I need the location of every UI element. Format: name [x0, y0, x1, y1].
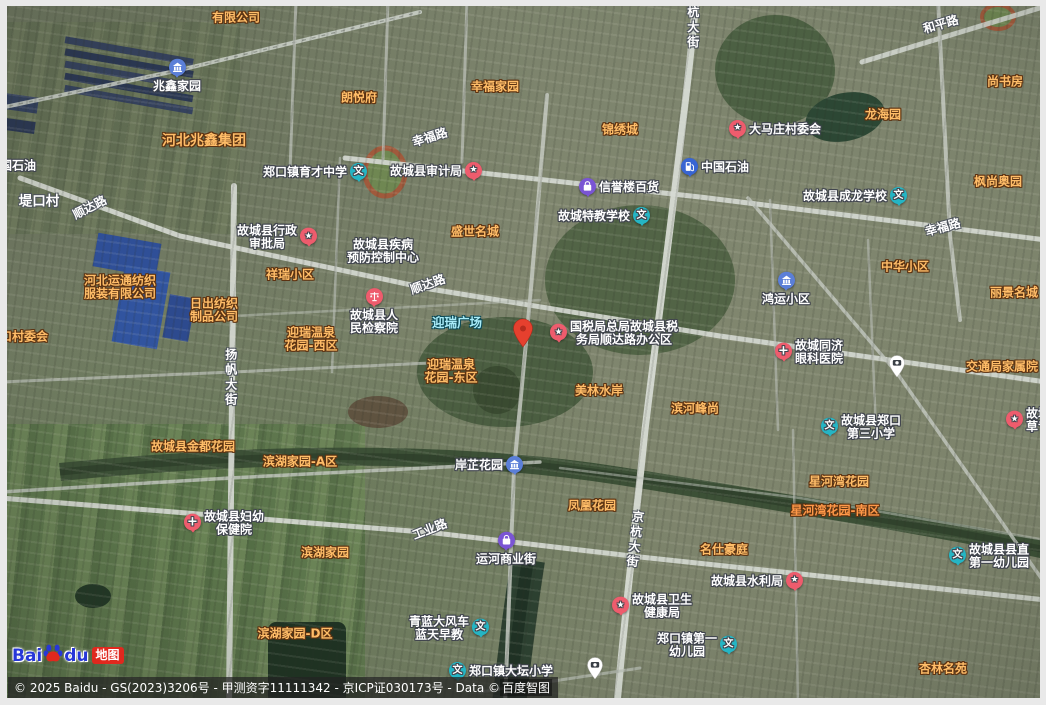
star-pin-icon[interactable]: ★: [300, 228, 317, 245]
school-pin-icon[interactable]: 文: [350, 163, 367, 180]
label-text: 盛世名城: [451, 225, 499, 238]
village-label: 堤口村: [19, 194, 60, 209]
estate-pin-icon[interactable]: [168, 59, 185, 76]
label-text: 中华小区: [881, 260, 929, 273]
baidu-logo-du: du: [64, 646, 88, 666]
map-world: 有限公司河北兆鑫集团朗悦府幸福家园锦绣城尚书房龙海园枫尚奥园中华小区丽景名城盛世…: [7, 6, 1040, 698]
label-text: 故城县疾病预防控制中心: [347, 239, 419, 266]
star-pin-icon[interactable]: ★: [550, 324, 567, 341]
label-text: 国石油: [7, 159, 36, 172]
label-text: 故城县金都花园: [151, 440, 235, 453]
map-labels-layer: 有限公司河北兆鑫集团朗悦府幸福家园锦绣城尚书房龙海园枫尚奥园中华小区丽景名城盛世…: [7, 6, 1040, 698]
label-text: 名仕豪庭: [700, 543, 748, 556]
label-text: 信誉楼百货: [599, 181, 659, 194]
poi-label[interactable]: 故城县成龙学校文: [803, 187, 907, 207]
baidu-paw-icon: [43, 643, 63, 668]
label-text: 幸福家园: [471, 80, 519, 93]
estate-pin-icon[interactable]: [777, 272, 794, 289]
area-label[interactable]: 有限公司: [212, 11, 260, 24]
area-label[interactable]: 中华小区: [881, 260, 929, 273]
road-label: 杭大街: [685, 6, 698, 51]
label-text: 故城同济眼科医院: [795, 340, 843, 367]
poi-label[interactable]: 郑口镇育才中学文: [263, 163, 367, 183]
poi-label[interactable]: 中国石油: [681, 158, 749, 178]
poi-label[interactable]: 兆鑫家园: [153, 59, 201, 93]
area-label[interactable]: 迎瑞温泉花园-西区: [285, 327, 338, 354]
area-label[interactable]: 星河湾花园: [809, 475, 869, 488]
area-label[interactable]: 滨河峰尚: [671, 402, 719, 415]
area-label[interactable]: 祥瑞小区: [266, 268, 314, 281]
shop-pin-icon[interactable]: [497, 532, 514, 549]
poi-label[interactable]: 信誉楼百货: [579, 178, 659, 198]
copyright-text: © 2025 Baidu - GS(2023)3206号 - 甲测资字11111…: [14, 679, 500, 696]
baidu-map-badge: 地图: [92, 647, 124, 665]
label-text: 日出纺织制品公司: [190, 298, 238, 325]
area-label[interactable]: 锦绣城: [602, 123, 638, 136]
label-text: 顺达路: [71, 194, 109, 222]
label-text: 有限公司: [212, 11, 260, 24]
poi-label[interactable]: 文故城县郑口第三小学: [821, 415, 901, 442]
poi-label[interactable]: 岸芷花园: [455, 456, 523, 476]
road-label: 扬帆大街: [223, 348, 236, 408]
label-text: 扬帆大街: [223, 348, 236, 408]
label-text: 杏林名苑: [919, 662, 967, 675]
area-label[interactable]: 滨湖家园: [301, 546, 349, 559]
label-text: 幸福路: [924, 217, 962, 239]
poi-label[interactable]: ★故城县卫生健康局: [612, 594, 692, 621]
label-text: 滨河峰尚: [671, 402, 719, 415]
label-text: 杭大街: [685, 6, 698, 51]
school-pin-icon[interactable]: 文: [720, 636, 737, 653]
cross-pin-icon[interactable]: +: [775, 343, 792, 360]
area-label[interactable]: 口村委会: [7, 330, 48, 343]
label-text: 故城特教学校: [558, 210, 630, 223]
label-text: 星河湾花园: [809, 475, 869, 488]
area-label[interactable]: 枫尚奥园: [974, 175, 1022, 188]
label-text: 故城县卫生健康局: [632, 594, 692, 621]
baidu-logo[interactable]: Bai du 地图: [12, 643, 124, 668]
poi-label[interactable]: 故城县审计局★: [390, 162, 482, 182]
area-label[interactable]: 凤凰花园: [568, 499, 616, 512]
copyright-brand: 百度智图: [500, 679, 552, 696]
poi-label[interactable]: 鸿运小区: [762, 272, 810, 306]
baidu-logo-bai: Bai: [12, 646, 42, 666]
star-pin-icon[interactable]: ★: [729, 120, 746, 137]
area-label[interactable]: 日出纺织制品公司: [190, 298, 238, 325]
school-pin-icon[interactable]: 文: [633, 207, 650, 224]
area-label[interactable]: 龙海园: [865, 108, 901, 121]
star-pin-icon[interactable]: ★: [612, 597, 629, 614]
label-text: 河北兆鑫集团: [162, 134, 246, 150]
traffic-camera-pin-icon[interactable]: [586, 656, 605, 684]
area-label[interactable]: 朗悦府: [341, 91, 377, 104]
label-text: 祥瑞小区: [266, 268, 314, 281]
area-label[interactable]: 交通局家属院: [966, 360, 1038, 373]
poi-label[interactable]: 青蓝大风车蓝天早教文: [409, 616, 489, 643]
label-text: 京杭大街: [624, 509, 645, 570]
label-text: 鸿运小区: [762, 293, 810, 306]
road-label: 幸福路: [924, 217, 962, 239]
label-text: 枫尚奥园: [974, 175, 1022, 188]
area-label[interactable]: 丽景名城: [990, 286, 1038, 299]
poi-label[interactable]: 文故城县县直第一幼儿园: [949, 544, 1029, 571]
cross-pin-icon[interactable]: +: [184, 514, 201, 531]
label-text: 中国石油: [701, 161, 749, 174]
label-text: 故城县水利局: [711, 575, 783, 588]
label-text: 口村委会: [7, 330, 48, 343]
fuel-pin-icon[interactable]: [681, 158, 698, 175]
poi-label[interactable]: 故城县行政审批局★: [237, 225, 317, 252]
poi-label[interactable]: ★国税局总局故城县税务局顺达路办公区: [550, 321, 678, 348]
label-text: 迎瑞广场: [432, 316, 482, 330]
road-label: 顺达路: [409, 273, 447, 297]
school-pin-icon[interactable]: 文: [821, 418, 838, 435]
label-text: 凤凰花园: [568, 499, 616, 512]
school-pin-icon[interactable]: 文: [472, 619, 489, 636]
area-label[interactable]: 迎瑞温泉花园-东区: [425, 359, 478, 386]
poi-label[interactable]: 故城县人民检察院: [350, 288, 398, 336]
area-label[interactable]: 星河湾花园-南区: [791, 504, 880, 517]
area-label[interactable]: 幸福家园: [471, 80, 519, 93]
area-label[interactable]: 美林水岸: [575, 384, 623, 397]
label-text: 青蓝大风车蓝天早教: [409, 616, 469, 643]
school-pin-icon[interactable]: 文: [890, 187, 907, 204]
label-text: 运河商业街: [476, 553, 536, 566]
road-label: 工业路: [411, 517, 449, 542]
poi-label[interactable]: 故城县水利局★: [711, 572, 803, 592]
poi-label[interactable]: 故城特教学校文: [558, 207, 650, 227]
label-text: 岸芷花园: [455, 459, 503, 472]
label-text: 郑口镇育才中学: [263, 166, 347, 179]
label-text: 滨湖家园: [301, 546, 349, 559]
label-text: 郑口镇第一幼儿园: [657, 633, 717, 660]
area-label[interactable]: 河北运通纺织服装有限公司: [84, 275, 156, 302]
label-text: 迎瑞温泉花园-东区: [425, 359, 478, 386]
label-text: 美林水岸: [575, 384, 623, 397]
label-text: 尚书房: [987, 75, 1023, 88]
star-pin-icon[interactable]: ★: [786, 572, 803, 589]
label-text: 迎瑞温泉花园-西区: [285, 327, 338, 354]
estate-pin-icon[interactable]: [506, 456, 523, 473]
label-text: 故城县县直第一幼儿园: [969, 544, 1029, 571]
school-pin-icon[interactable]: 文: [949, 547, 966, 564]
label-text: 朗悦府: [341, 91, 377, 104]
label-text: 河北运通纺织服装有限公司: [84, 275, 156, 302]
plaza-label: 迎瑞广场: [432, 316, 482, 330]
red-location-marker[interactable]: [512, 318, 534, 352]
label-text: 故城县郑口第三小学: [841, 415, 901, 442]
poi-label[interactable]: 运河商业街: [476, 532, 536, 566]
label-text: 兆鑫家园: [153, 80, 201, 93]
star-pin-icon[interactable]: ★: [465, 162, 482, 179]
poi-label[interactable]: ★故城草专: [1006, 408, 1040, 435]
area-label[interactable]: 盛世名城: [451, 225, 499, 238]
road-label: 京杭大街: [624, 509, 645, 570]
poi-label[interactable]: ★大马庄村委会: [729, 120, 821, 140]
area-label[interactable]: 河北兆鑫集团: [162, 134, 246, 150]
map-viewport[interactable]: 有限公司河北兆鑫集团朗悦府幸福家园锦绣城尚书房龙海园枫尚奥园中华小区丽景名城盛世…: [7, 6, 1040, 698]
label-text: 故城县妇幼保健院: [204, 511, 264, 538]
label-text: 国税局总局故城县税务局顺达路办公区: [570, 321, 678, 348]
poi-label[interactable]: 故城县疾病预防控制中心: [347, 239, 419, 266]
poi-label[interactable]: +故城县妇幼保健院: [184, 511, 264, 538]
label-text: 工业路: [411, 517, 449, 542]
label-text: 星河湾花园-南区: [791, 504, 880, 517]
label-text: 故城县审计局: [390, 165, 462, 178]
road-label: 幸福路: [411, 126, 449, 149]
poi-label[interactable]: 郑口镇第一幼儿园文: [657, 633, 737, 660]
label-text: 滨湖家园-A区: [263, 455, 337, 468]
label-text: 堤口村: [19, 194, 60, 209]
label-text: 滨湖家园-D区: [258, 627, 333, 640]
area-label[interactable]: 滨湖家园-D区: [258, 627, 333, 640]
label-text: 龙海园: [865, 108, 901, 121]
label-text: 幸福路: [411, 126, 449, 149]
poi-label[interactable]: +故城同济眼科医院: [775, 340, 843, 367]
label-text: 故城县行政审批局: [237, 225, 297, 252]
label-text: 顺达路: [409, 273, 447, 297]
label-text: 丽景名城: [990, 286, 1038, 299]
label-text: 大马庄村委会: [749, 123, 821, 136]
area-label[interactable]: 尚书房: [987, 75, 1023, 88]
road-label: 顺达路: [71, 194, 109, 222]
label-text: 锦绣城: [602, 123, 638, 136]
poi-label[interactable]: 国石油: [7, 159, 36, 172]
area-label[interactable]: 故城县金都花园: [151, 440, 235, 453]
area-label[interactable]: 名仕豪庭: [700, 543, 748, 556]
label-text: 故城县成龙学校: [803, 190, 887, 203]
road-label: 和平路: [922, 14, 960, 37]
traffic-camera-pin-icon[interactable]: [888, 354, 907, 382]
star-pin-icon[interactable]: ★: [1006, 411, 1023, 428]
label-text: 交通局家属院: [966, 360, 1038, 373]
justice-pin-icon[interactable]: [365, 288, 382, 305]
shop-pin-icon[interactable]: [579, 178, 596, 195]
area-label[interactable]: 滨湖家园-A区: [263, 455, 337, 468]
label-text: 故城县人民检察院: [350, 309, 398, 336]
label-text: 故城草专: [1026, 408, 1040, 435]
label-text: 和平路: [922, 14, 960, 37]
area-label[interactable]: 杏林名苑: [919, 662, 967, 675]
map-page: 有限公司河北兆鑫集团朗悦府幸福家园锦绣城尚书房龙海园枫尚奥园中华小区丽景名城盛世…: [0, 0, 1046, 705]
map-attribution: © 2025 Baidu - GS(2023)3206号 - 甲测资字11111…: [8, 677, 558, 698]
